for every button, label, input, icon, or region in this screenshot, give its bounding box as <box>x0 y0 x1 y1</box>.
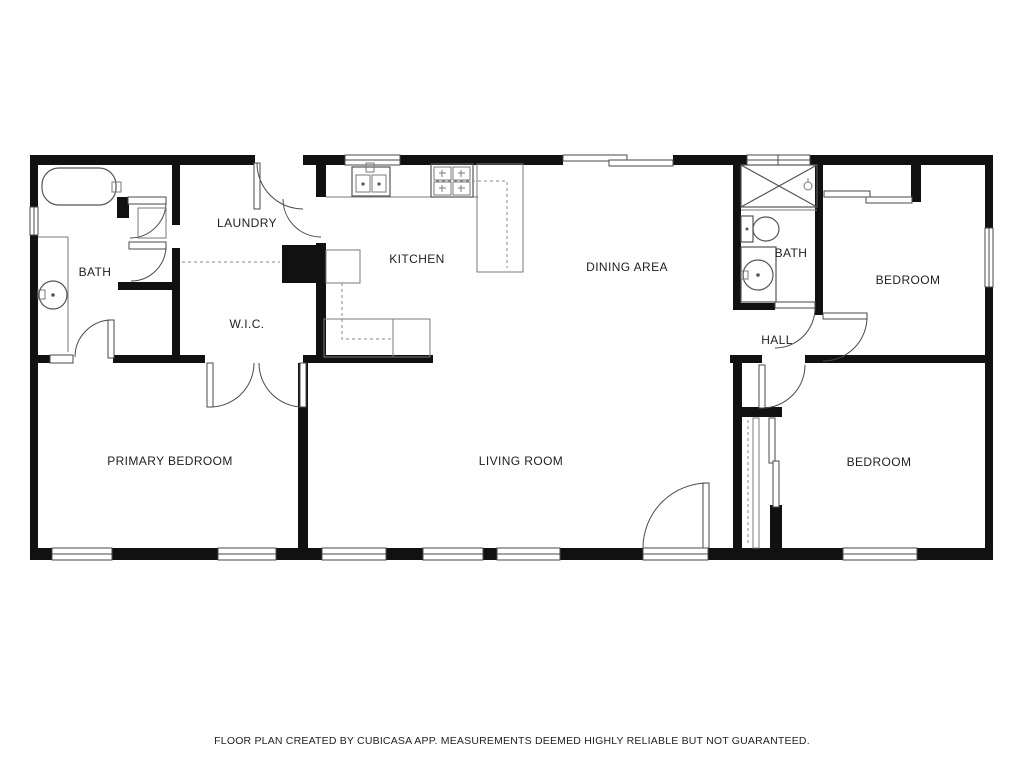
window <box>30 207 38 235</box>
room-label-bedroom-2: BEDROOM <box>847 455 912 469</box>
floor-plan-canvas: LAUNDRY BATH KITCHEN DINING AREA BATH BE… <box>0 0 1024 768</box>
room-label-laundry: LAUNDRY <box>217 216 277 230</box>
bedroom1-sliding-closet-doors <box>824 191 912 203</box>
room-label-hall: HALL <box>761 333 793 347</box>
room-label-bath-2: BATH <box>775 246 808 260</box>
window <box>322 548 386 560</box>
window <box>423 548 483 560</box>
room-label-primary-bedroom: PRIMARY BEDROOM <box>107 454 233 468</box>
window <box>52 548 112 560</box>
closet-fixtures <box>748 191 912 548</box>
bath1-door <box>75 320 114 358</box>
primary-bedroom-double-door-left <box>207 363 254 407</box>
bedroom2-door <box>759 365 805 408</box>
laundry-exterior-door <box>254 163 303 209</box>
entry-door <box>643 483 709 560</box>
window <box>497 548 560 560</box>
window <box>843 548 917 560</box>
room-label-kitchen: KITCHEN <box>389 252 444 266</box>
cabinet-piece <box>50 355 73 363</box>
shower-fixture <box>741 165 817 210</box>
window <box>985 228 993 287</box>
vanity-sink-fixture <box>741 247 776 302</box>
bedroom1-door <box>823 313 867 361</box>
vestibule-door-top <box>128 197 166 238</box>
bathtub-fixture <box>42 168 121 205</box>
footer-disclaimer: FLOOR PLAN CREATED BY CUBICASA APP. MEAS… <box>0 735 1024 747</box>
kitchen-sink-fixture <box>352 163 390 196</box>
room-label-bath-1: BATH <box>79 265 112 279</box>
counter-lower-left <box>324 250 430 357</box>
sliding-door <box>563 155 673 166</box>
room-label-dining-area: DINING AREA <box>586 260 668 274</box>
window <box>218 548 276 560</box>
walls <box>30 155 993 560</box>
room-label-bedroom-1: BEDROOM <box>876 273 941 287</box>
bath2-fixtures <box>741 165 817 302</box>
window <box>747 155 810 165</box>
toilet-fixture <box>741 216 779 242</box>
floor-plan-drawing <box>0 0 1024 768</box>
room-label-living-room: LIVING ROOM <box>479 454 563 468</box>
room-label-wic: W.I.C. <box>229 317 264 331</box>
vestibule-door-bottom <box>129 242 166 281</box>
vanity-sink-fixture <box>38 237 68 352</box>
kitchen-laundry-door <box>283 199 321 237</box>
